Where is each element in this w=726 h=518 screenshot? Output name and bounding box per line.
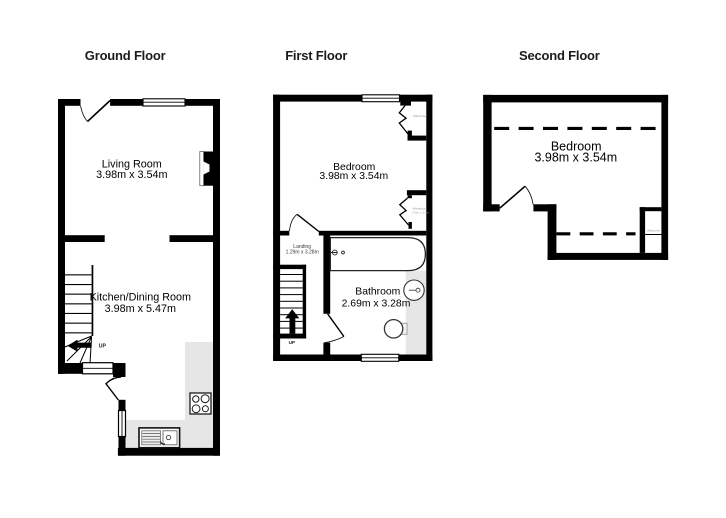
svg-text:3.98m x 3.54m: 3.98m x 3.54m <box>96 169 167 181</box>
svg-text:Ground Floor: Ground Floor <box>85 48 166 63</box>
svg-text:UP: UP <box>289 340 295 345</box>
svg-text:First Floor: First Floor <box>285 48 347 63</box>
svg-text:3.98m x 5.47m: 3.98m x 5.47m <box>105 303 176 315</box>
svg-text:Wardrobe: Wardrobe <box>647 229 660 233</box>
svg-text:Bathroom: Bathroom <box>355 287 400 298</box>
svg-text:2.69m x 3.28m: 2.69m x 3.28m <box>342 299 411 310</box>
svg-text:Second Floor: Second Floor <box>519 48 600 63</box>
svg-text:UP: UP <box>99 344 107 350</box>
svg-text:3.98m x 3.54m: 3.98m x 3.54m <box>534 150 617 164</box>
svg-text:Wardrobe: Wardrobe <box>413 114 426 118</box>
svg-text:3.98m x 3.54m: 3.98m x 3.54m <box>319 171 388 182</box>
svg-text:1.29m x 3.28m: 1.29m x 3.28m <box>286 250 319 256</box>
svg-text:0.6m x 1.2m: 0.6m x 1.2m <box>413 211 430 215</box>
svg-text:Kitchen/Dining Room: Kitchen/Dining Room <box>90 292 191 304</box>
